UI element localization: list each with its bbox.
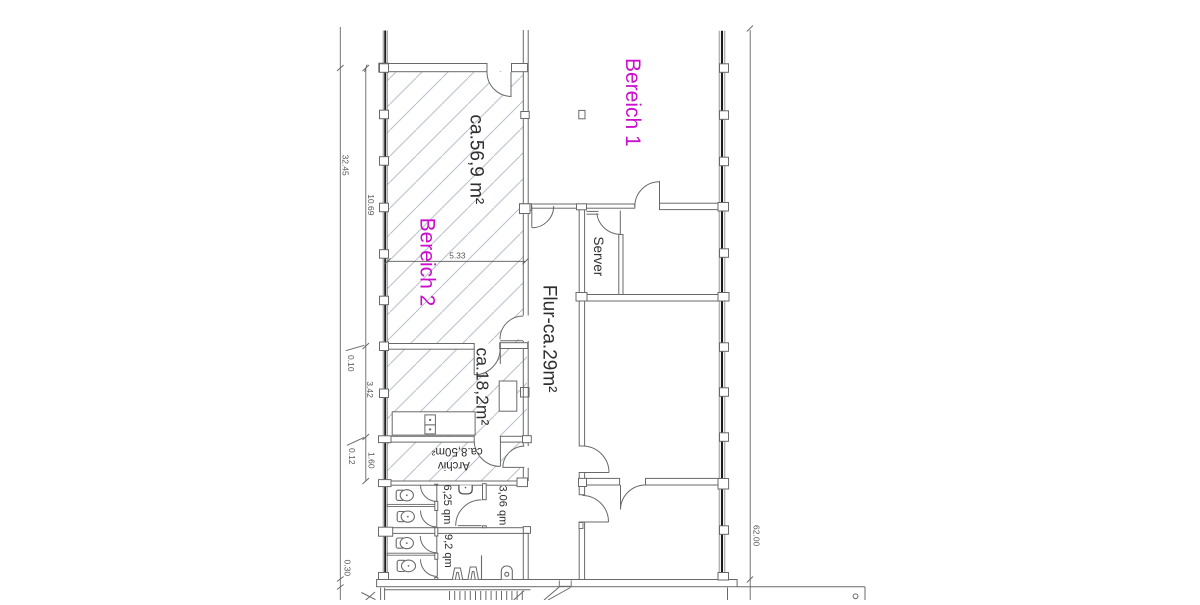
svg-text:62.00: 62.00 bbox=[752, 525, 762, 547]
svg-text:6,25 qm: 6,25 qm bbox=[441, 485, 453, 525]
svg-text:1.60: 1.60 bbox=[367, 452, 377, 469]
svg-text:32.45: 32.45 bbox=[340, 155, 350, 177]
svg-text:9,2 qm: 9,2 qm bbox=[442, 534, 454, 568]
svg-text:0.30: 0.30 bbox=[343, 560, 353, 577]
svg-text:5.33: 5.33 bbox=[449, 251, 466, 261]
svg-text:10.69: 10.69 bbox=[366, 194, 376, 216]
svg-text:3.42: 3.42 bbox=[365, 381, 375, 398]
svg-text:0.12: 0.12 bbox=[347, 448, 357, 465]
svg-text:0.10: 0.10 bbox=[346, 355, 356, 372]
svg-text:Flur-ca.29m²: Flur-ca.29m² bbox=[539, 285, 560, 393]
svg-text:3,06 qm: 3,06 qm bbox=[496, 486, 508, 526]
svg-text:Server: Server bbox=[591, 237, 606, 277]
svg-text:Bereich 1: Bereich 1 bbox=[621, 58, 644, 147]
svg-text:ca.56,9 m²: ca.56,9 m² bbox=[466, 115, 487, 205]
svg-text:ca.8,50m²: ca.8,50m² bbox=[431, 445, 482, 457]
svg-text:ca.18,2m²: ca.18,2m² bbox=[473, 348, 493, 426]
svg-text:Bereich 2: Bereich 2 bbox=[415, 218, 438, 307]
svg-text:Archiv: Archiv bbox=[438, 459, 470, 471]
